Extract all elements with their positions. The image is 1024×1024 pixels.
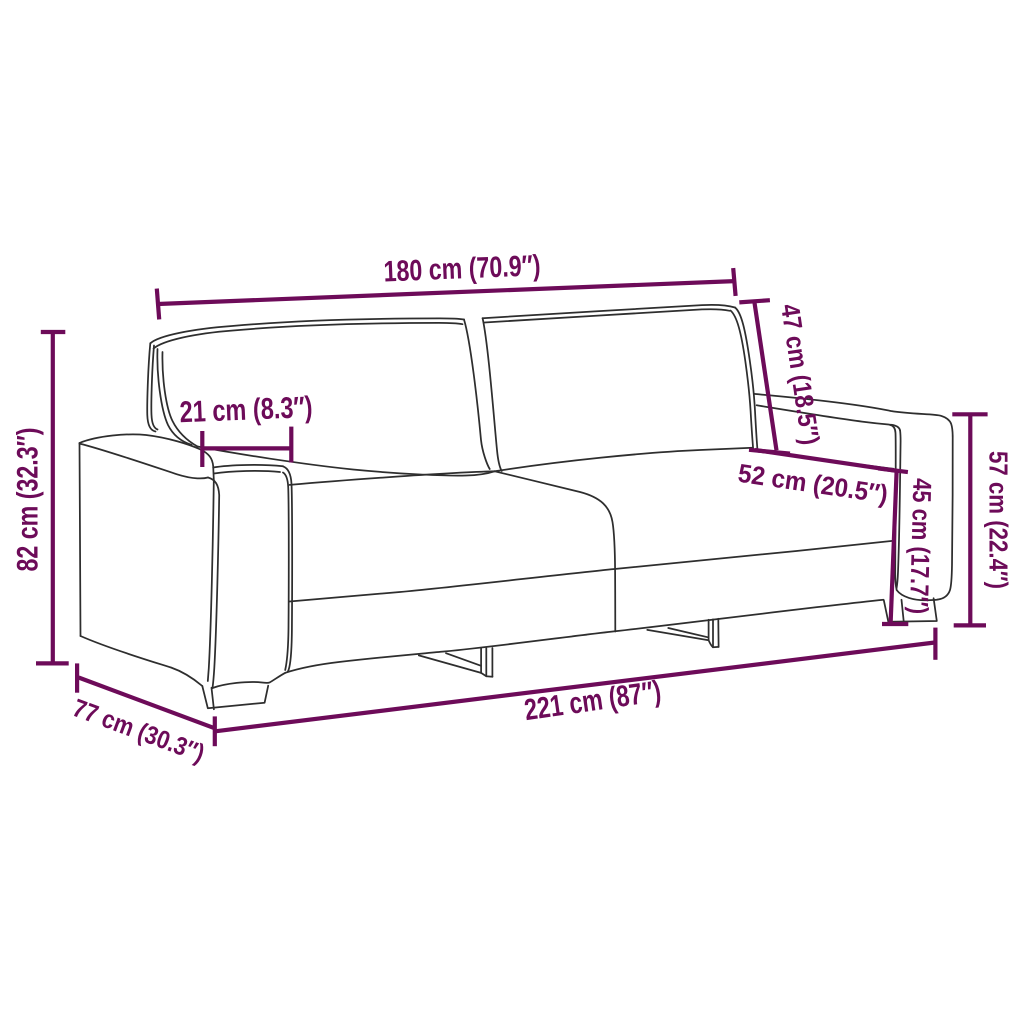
svg-text:21 cm (8.3″): 21 cm (8.3″)	[179, 391, 313, 429]
svg-text:180 cm (70.9″): 180 cm (70.9″)	[383, 249, 541, 288]
svg-text:45 cm (17.7″): 45 cm (17.7″)	[904, 478, 938, 615]
svg-text:82 cm (32.3″): 82 cm (32.3″)	[12, 428, 45, 572]
svg-text:57 cm (22.4″): 57 cm (22.4″)	[984, 451, 1014, 589]
